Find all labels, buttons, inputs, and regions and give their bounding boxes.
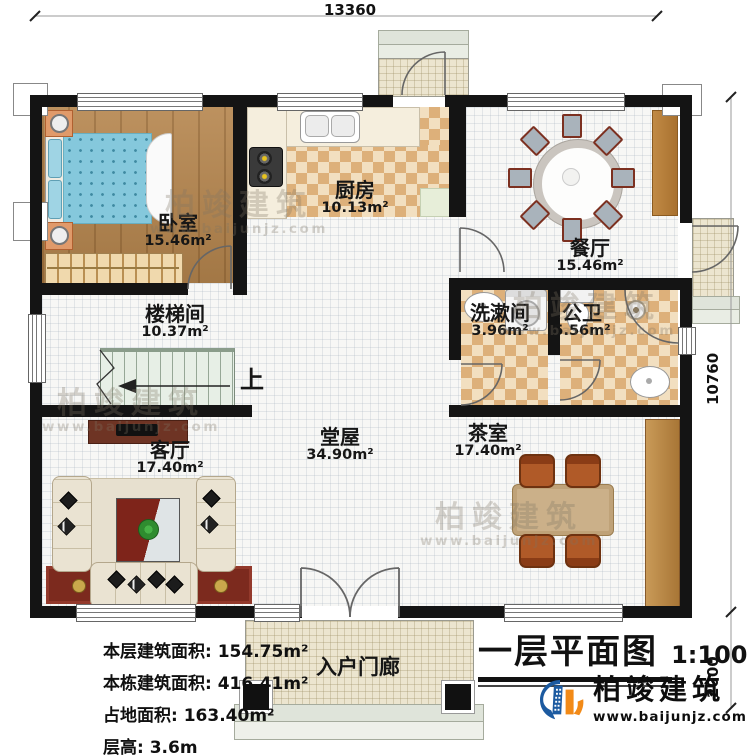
stair-arrow-head (118, 379, 136, 393)
door-bedroom (188, 246, 231, 289)
stairs-up-text: 上 (234, 368, 270, 393)
hall-label: 堂屋 34.90m² (275, 427, 405, 463)
dining-label: 餐厅 15.46m² (530, 238, 650, 274)
stair-break-line (97, 350, 114, 404)
dining-area: 15.46m² (530, 259, 650, 274)
entry-porch-name: 入户门廊 (288, 656, 428, 678)
bedroom-label: 卧室 15.46m² (118, 213, 238, 249)
kitchen-area: 10.13m² (295, 201, 415, 216)
door-dining (460, 228, 504, 272)
door-washroom (461, 364, 502, 405)
entry-porch-label: 入户门廊 (288, 656, 428, 678)
info-land-area: 占地面积: 163.40m² (103, 701, 308, 726)
hall-name: 堂屋 (275, 427, 405, 448)
kitchen-name: 厨房 (295, 180, 415, 201)
living-room-area: 17.40m² (110, 461, 230, 476)
bedroom-area: 15.46m² (118, 234, 238, 249)
dimension-width-label: 13360 (316, 1, 384, 19)
dining-name: 餐厅 (530, 238, 650, 259)
kitchen-label: 厨房 10.13m² (295, 180, 415, 216)
logo-website: www.baijunjz.com (593, 709, 747, 725)
door-back (402, 52, 445, 95)
logo-block: 柏竣建筑 www.baijunjz.com (536, 676, 747, 725)
floor-plan-canvas: 13360 10760 2000 卧室 15.46m² 厨房 10.13m² 餐… (0, 0, 750, 756)
bathroom-name: 公卫 (530, 303, 634, 324)
info-block: 本层建筑面积: 154.75m² 本栋建筑面积: 416.41m² 占地面积: … (103, 637, 308, 756)
stairwell-area: 10.37m² (115, 325, 235, 340)
stairwell-name: 楼梯间 (115, 304, 235, 325)
door-bathroom (560, 360, 600, 400)
living-room-name: 客厅 (110, 440, 230, 461)
living-room-label: 客厅 17.40m² (110, 440, 230, 476)
logo-company-name: 柏竣建筑 (593, 676, 747, 704)
logo-icon (536, 676, 584, 724)
info-floor-area: 本层建筑面积: 154.75m² (103, 637, 308, 662)
dimension-height-upper-label: 10760 (704, 320, 722, 405)
door-entrance-left (301, 568, 350, 617)
stairwell-label: 楼梯间 10.37m² (115, 304, 235, 340)
stairs-up-label: 上 (234, 368, 270, 393)
floor-plan-scale: 1:100 (671, 641, 747, 669)
floor-plan-title: 一层平面图 (478, 632, 658, 672)
info-floor-height: 层高: 3.6m (103, 733, 308, 756)
tea-room-name: 茶室 (428, 423, 548, 444)
bathroom-area: 5.56m² (530, 324, 634, 339)
bedroom-name: 卧室 (118, 213, 238, 234)
info-building-area: 本栋建筑面积: 416.41m² (103, 669, 308, 694)
tea-room-label: 茶室 17.40m² (428, 423, 548, 459)
dimension-tick (30, 11, 736, 713)
tea-room-area: 17.40m² (428, 444, 548, 459)
hall-area: 34.90m² (275, 448, 405, 463)
bathroom-label: 公卫 5.56m² (530, 303, 634, 339)
door-entrance-right (350, 568, 399, 617)
